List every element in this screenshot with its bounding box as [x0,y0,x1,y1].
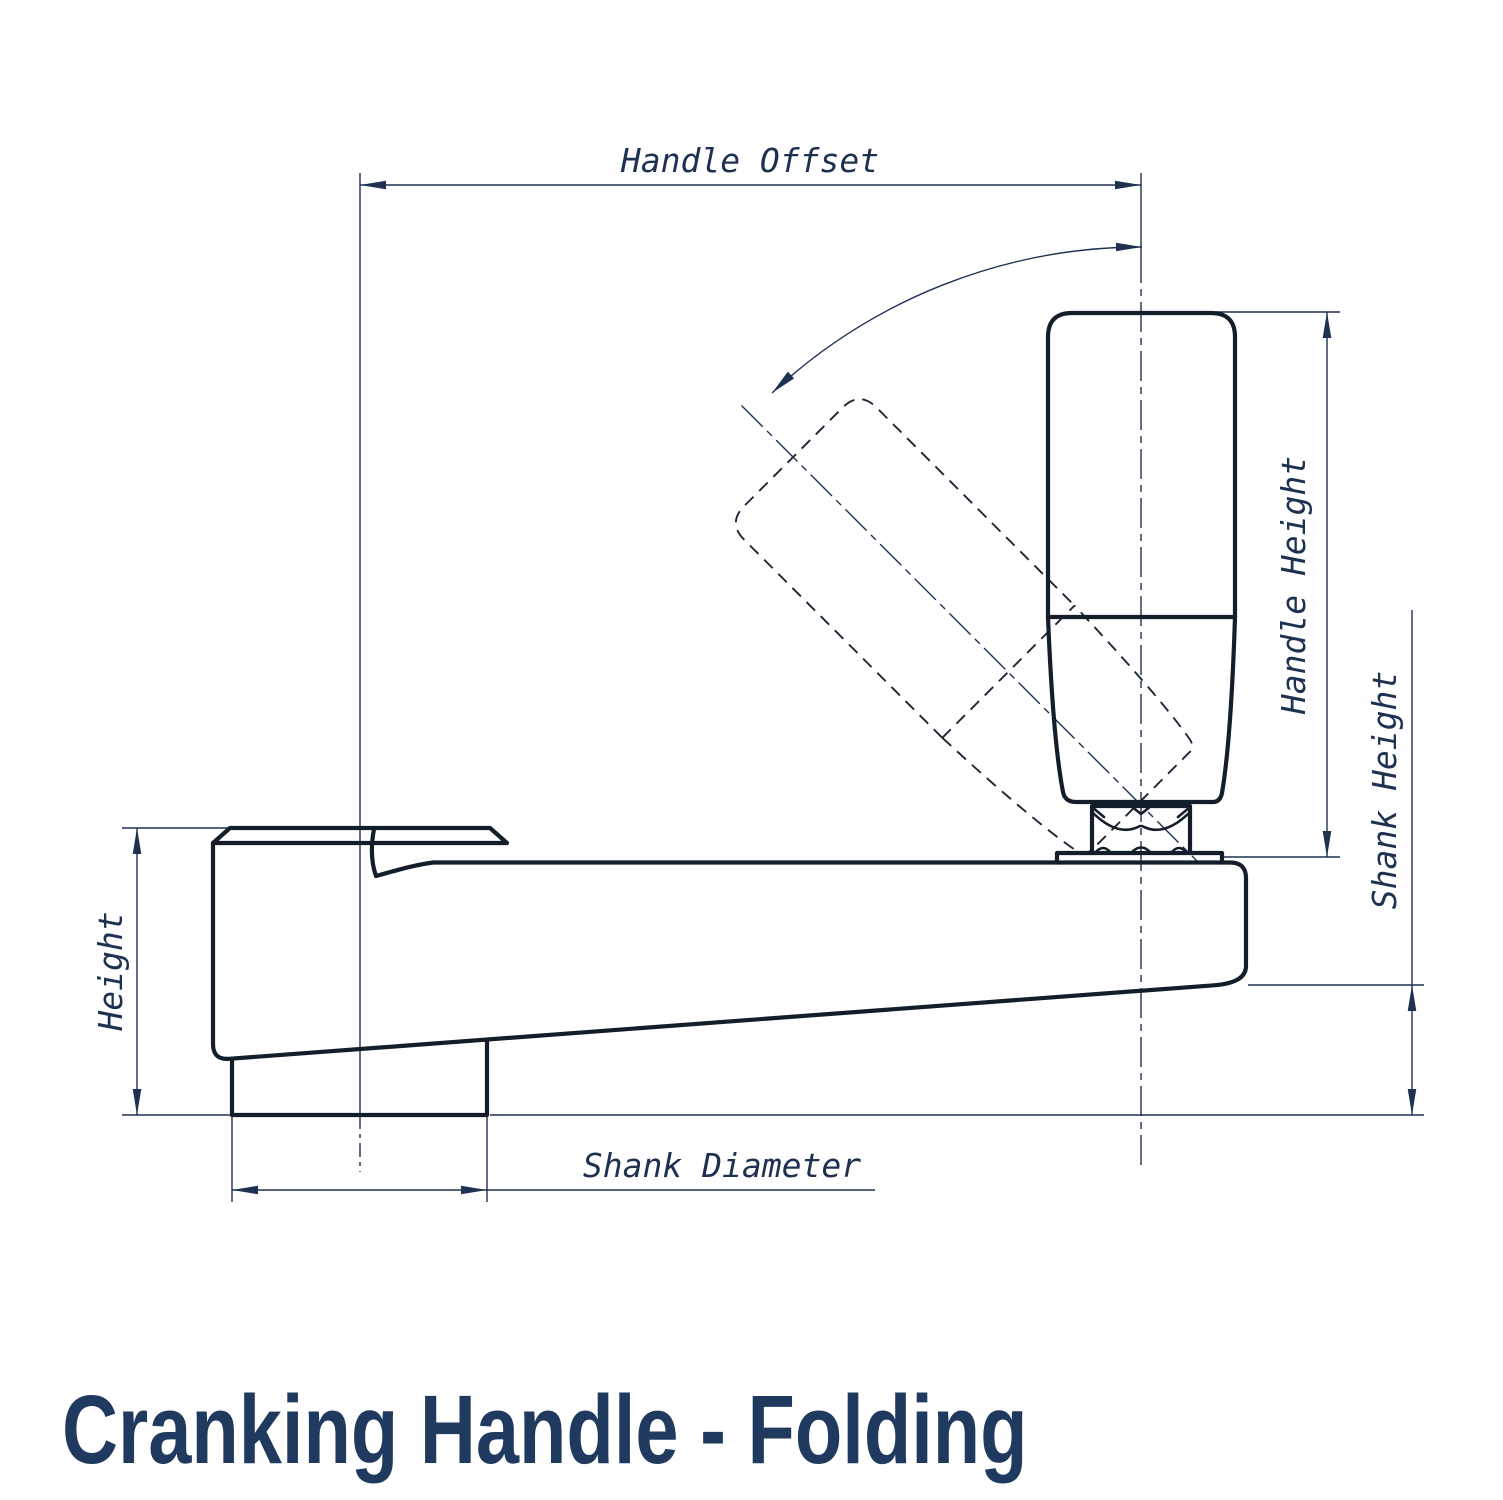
dimension-arrowheads [133,181,1417,1195]
label-height: Height [91,911,130,1031]
crank-arm-outline [213,843,1246,1059]
dimension-lines [122,173,1424,1202]
hub-neck-curve [372,829,433,876]
label-shank-diameter: Shank Diameter [583,1146,861,1185]
arrow-arc-end [772,372,794,393]
folded-handle-centerline [741,405,1199,863]
crank-part [213,313,1246,1115]
arrow-shankheight-bottom [1408,1089,1417,1115]
drawing-title-group: Cranking Handle - Folding [62,1375,1028,1484]
arrow-handleheight-top [1323,312,1332,338]
label-shank-height: Shank Height [1365,671,1404,909]
technical-drawing: Handle Offset Handle Height Shank Height… [0,0,1503,1500]
arrow-height-bottom [133,1089,142,1115]
arrow-height-top [133,828,142,854]
label-handle-height: Handle Height [1274,456,1313,715]
arrow-shankdia-right [461,1186,487,1195]
page-title: Cranking Handle - Folding [62,1375,1028,1484]
drawing-page: Handle Offset Handle Height Shank Height… [0,0,1503,1500]
folded-handle-outline [676,339,1266,929]
arrow-offset-left [360,181,386,190]
arrow-offset-right [1115,181,1141,190]
arrow-arc-top [1116,243,1142,252]
arrow-handleheight-bottom [1323,831,1332,857]
label-handle-offset: Handle Offset [620,141,879,180]
arrow-shankheight-top [1408,985,1417,1011]
arrow-shankdia-left [232,1186,258,1195]
fold-arc [772,247,1142,393]
